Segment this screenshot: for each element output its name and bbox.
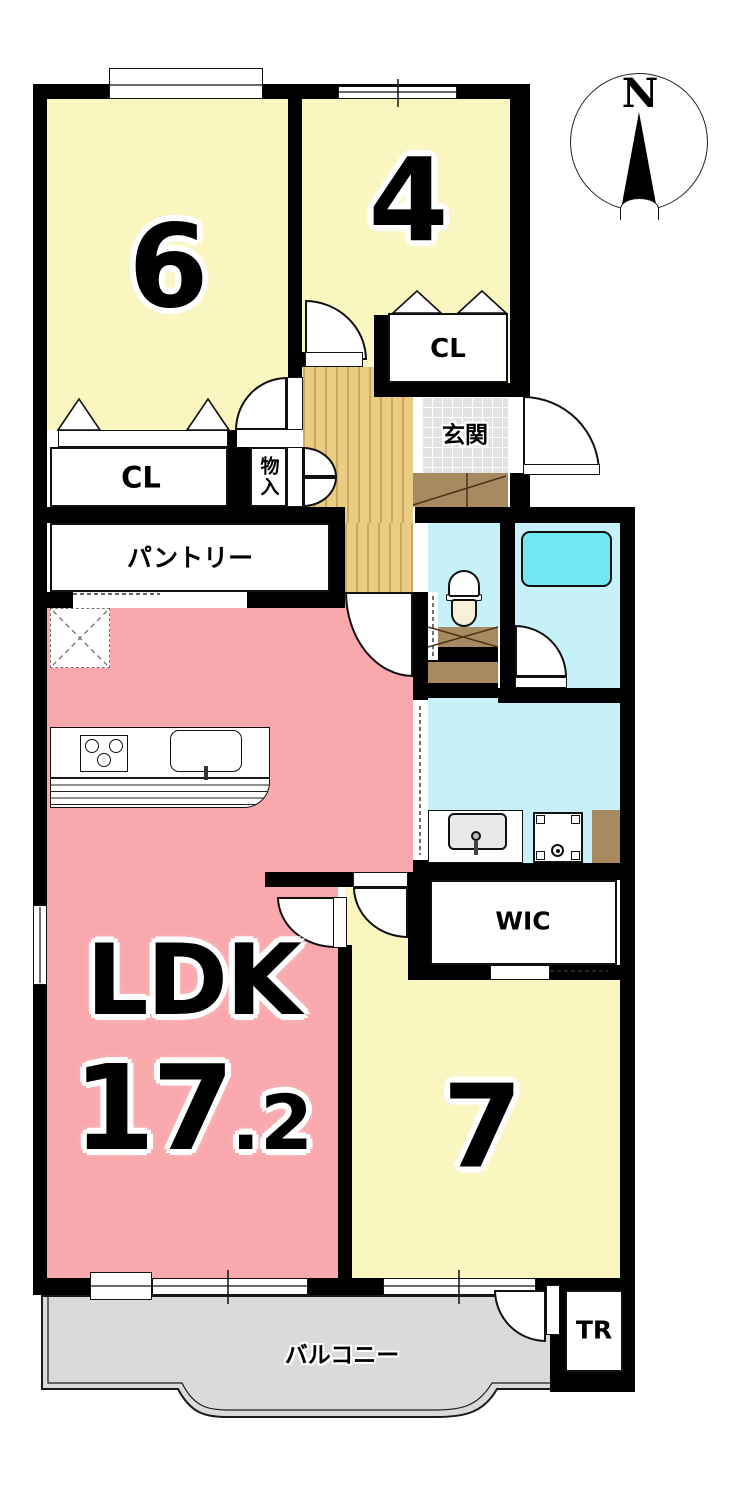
wall-segment — [413, 647, 498, 662]
window — [338, 86, 457, 99]
washer-corner — [536, 851, 545, 860]
shoe-cabinet — [413, 473, 508, 507]
window — [152, 1278, 308, 1295]
wall-segment — [374, 383, 523, 397]
closet-lower-label: CL — [121, 464, 161, 493]
ldk-area-whole: 17 — [73, 1039, 231, 1177]
compass-needle-notch — [620, 198, 659, 220]
bedroom-6-label: 6 — [128, 211, 205, 326]
window — [109, 68, 263, 99]
door-leaf — [305, 352, 363, 367]
wall-segment — [498, 688, 620, 703]
wall-segment — [33, 84, 47, 1295]
storage-label: 物入 — [259, 456, 278, 498]
bathtub — [521, 531, 612, 587]
window — [90, 1272, 152, 1300]
basin-faucet — [471, 831, 481, 841]
washroom-cabinet — [592, 810, 620, 863]
wall-segment — [510, 84, 530, 397]
wall-segment — [413, 683, 498, 698]
entrance-label: 玄関 — [442, 425, 488, 448]
closet-door-track — [58, 430, 228, 447]
trunk-room-label: TR — [576, 1318, 612, 1343]
washer-corner — [571, 815, 580, 824]
wall-segment — [620, 507, 635, 1392]
kitchen-faucet — [204, 766, 208, 780]
doorway-gap — [237, 430, 303, 447]
window — [33, 905, 47, 985]
washroom-sliding-door — [413, 700, 428, 860]
bedroom-4-label: 4 — [368, 145, 445, 260]
wall-segment — [415, 507, 634, 523]
wall-segment — [228, 447, 250, 507]
door-leaf — [353, 872, 408, 887]
bath-door-leaf — [515, 677, 567, 688]
stove-burner — [97, 753, 111, 767]
wall-segment — [408, 872, 424, 980]
ldk-label: LDK — [86, 932, 300, 1030]
kitchen-counter-front — [50, 778, 270, 808]
bedroom-7-label: 7 — [442, 1071, 519, 1186]
stove-burner — [85, 739, 99, 753]
wall-segment — [33, 507, 345, 523]
hallway-floor-lower — [345, 523, 413, 593]
balcony-door-leaf — [546, 1285, 560, 1335]
wall-segment — [338, 945, 352, 1278]
wic-label: WIC — [495, 909, 550, 934]
ldk-area-fraction: .2 — [231, 1078, 313, 1167]
stove-burner — [109, 739, 123, 753]
wall-segment — [374, 315, 388, 383]
compass-north-label: N — [622, 74, 659, 114]
entrance-step — [413, 397, 422, 473]
entrance-door-leaf — [523, 464, 600, 475]
toilet-bowl — [451, 599, 477, 627]
toilet-sliding-door — [428, 592, 438, 660]
wall-segment — [265, 872, 353, 887]
wall-segment — [413, 863, 620, 880]
balcony-label: バルコニー — [285, 1345, 400, 1368]
door-leaf — [287, 377, 303, 430]
toilet-counter — [428, 627, 498, 647]
washer-corner — [571, 851, 580, 860]
toilet-tank — [448, 570, 480, 597]
basin-faucet-stem — [474, 841, 478, 855]
closet-upper-label: CL — [430, 336, 466, 362]
wic-door-track — [490, 965, 550, 980]
storage-door-leaf — [287, 447, 303, 507]
pantry-label: パントリー — [127, 546, 253, 571]
door-leaf — [333, 897, 347, 948]
washer-drain-dot — [556, 849, 560, 853]
kitchen-opening — [160, 592, 247, 608]
ldk-area-label: 17.2 — [73, 1049, 313, 1167]
wall-segment — [500, 523, 515, 690]
washer-corner — [536, 815, 545, 824]
wall-segment — [330, 523, 345, 593]
pantry-opening — [73, 592, 160, 608]
refrigerator-space — [50, 608, 110, 668]
compass-needle — [622, 112, 656, 204]
linen-cabinet — [428, 662, 498, 683]
floor-plan: 6 4 CL 玄関 CL 物入 パントリー LDK 17.2 WIC 7 バルコ… — [0, 0, 740, 1490]
